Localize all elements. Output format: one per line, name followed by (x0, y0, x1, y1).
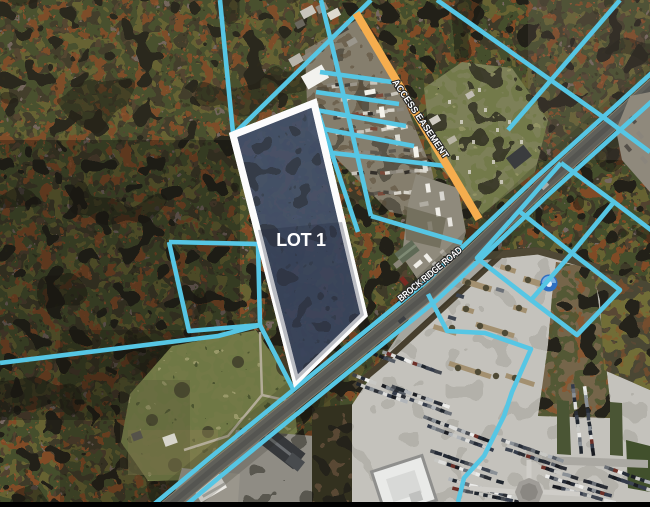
svg-text:LOT 1: LOT 1 (276, 230, 326, 250)
